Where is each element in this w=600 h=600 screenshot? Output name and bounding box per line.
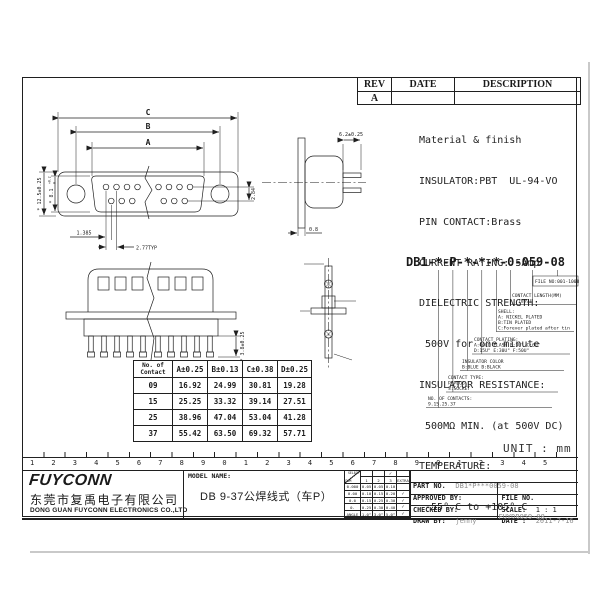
page-edge-shadow-bottom [30, 551, 590, 553]
note-line: Material & finish [419, 134, 589, 148]
break-line [147, 262, 154, 360]
cell: 63.50 [208, 426, 243, 442]
cell: 16.92 [173, 378, 208, 394]
dim-pin-length-label: 6.2±0.25 [339, 132, 363, 138]
tol-cell: 0.0 [345, 498, 361, 505]
ruler-numbers: 1234567890123456789012345 [30, 459, 564, 467]
cell: 39.14 [243, 394, 278, 410]
dimension-flange-thickness: 0.8 [288, 227, 322, 236]
tol-col: 3 [385, 477, 397, 484]
cell: 69.32 [243, 426, 278, 442]
code-color: INSULATOR COLOR [462, 359, 504, 365]
dim-flange-thickness-label: 0.8 [309, 227, 318, 233]
col-header: D±0.25 [278, 361, 312, 378]
tol-cell: ✓ [397, 511, 410, 518]
dim-half-pitch-label: 1.385 [76, 231, 91, 237]
tol-cell: ANGLE [345, 511, 361, 518]
table-row: 09 16.92 24.99 30.81 19.28 [134, 378, 312, 394]
code-type: CONTACT TYPE: [448, 375, 484, 381]
code-plating-option: A:GOLD FLASH B:3U" C:6U" [474, 343, 540, 349]
code-contacts-value: 9.15.25.37 [428, 402, 456, 408]
tol-col: 2 [373, 477, 385, 484]
tol-cell [397, 484, 410, 491]
tol-cell: 0. [345, 504, 361, 511]
cell: 53.04 [243, 410, 278, 426]
description-header: DESCRIPTION [455, 78, 581, 92]
ruler-line [22, 457, 578, 458]
tol-cell: 0.000 [345, 484, 361, 491]
model-name-value: DB 9-37公焊线式（车P） [200, 488, 332, 504]
tol-cell: 0.05 [361, 484, 373, 491]
dimension-row-offset: 2.84 [188, 187, 257, 201]
tol-cell: 0.00 [345, 491, 361, 498]
company-name-english: DONG GUAN FUYCONN ELECTRONICS CO.,LTD [30, 507, 188, 514]
code-shell: SHELL: [498, 309, 515, 315]
draw-by-label: DRAW BY: [413, 517, 446, 525]
note-line: PIN CONTACT:Brass [419, 216, 589, 230]
tol-cell: 0.15 [361, 498, 373, 505]
tolerance-corner-cell: SELECT DIM [345, 471, 361, 484]
revision-table: REV DATE DESCRIPTION A [357, 77, 581, 105]
tolerance-select-table: SELECT DIM ✓ 1 2 3 EXTRA 0.000 0.05 0.05… [345, 471, 410, 518]
cell: 09 [134, 378, 173, 394]
description-value [455, 92, 581, 105]
rev-header: REV [358, 78, 392, 92]
part-code-title: DB1-*-P-*-*-*-0-059-08 [406, 255, 565, 269]
table-header-row: No. of Contact A±0.25 B±0.13 C±0.38 D±0.… [134, 361, 312, 378]
code-type-option: S:SOCKET [448, 386, 470, 392]
tol-cell: 3.0° [373, 511, 385, 518]
tol-cell: 0.20 [385, 491, 397, 498]
date-header: DATE [392, 78, 455, 92]
date-value [392, 92, 455, 105]
company-logo: FUYCONN [28, 472, 113, 490]
dim-height-inner-label: * 8.1 [49, 188, 55, 203]
table-row: 25 38.96 47.04 53.04 41.28 [134, 410, 312, 426]
corner-header: No. of Contact [134, 361, 173, 378]
tol-cell: 0.10 [361, 491, 373, 498]
rear-view-drawing: * 3.8±0.25 [58, 256, 248, 362]
code-file-no: FILE NO:001-1008 [535, 279, 579, 285]
dim-tol-bottom: 0 [53, 182, 57, 184]
tol-cell: 1.0° [361, 511, 373, 518]
dim-height-outer-label: * 12.5±0.25 [37, 177, 43, 210]
tol-col: EXTRA [397, 477, 410, 484]
tol-cell: 0.30 [385, 498, 397, 505]
part-info-section: PART NO. DB1*P***0059-08 APPROVED BY: FI… [410, 471, 578, 518]
dim-tol-top: +0.2 [48, 176, 52, 184]
code-plating-option: D:15U" E:30U" F:50U" [474, 348, 529, 354]
cell: 37 [134, 426, 173, 442]
tol-col: 1 [361, 477, 373, 484]
cell: 38.96 [173, 410, 208, 426]
cell: 41.28 [278, 410, 312, 426]
dim-c-label: C [146, 108, 151, 117]
engineering-drawing-sheet: REV DATE DESCRIPTION A Material & finish… [0, 0, 600, 600]
dimension-height-inner: * 8.1 +0.2 0 [48, 176, 91, 212]
dim-cup-length-label: * 3.8±0.25 [240, 331, 246, 361]
dimension-pin-length: 6.2±0.25 [339, 132, 363, 170]
connector-front-outline [58, 172, 238, 216]
draw-by-value: jenny [455, 517, 476, 525]
solder-pins [88, 336, 214, 357]
tol-cell: ✓ [397, 504, 410, 511]
code-shell-option: B:TIN PLATED [498, 320, 531, 326]
code-shell-option: A: NICKEL PLATED [498, 315, 542, 321]
col-header: C±0.38 [243, 361, 278, 378]
tol-cell: 5.0° [385, 511, 397, 518]
dim-pitch-label: 2.77TYP [136, 246, 157, 252]
code-plating: CONTACT PLATING: [474, 337, 518, 343]
title-block: FUYCONN 东莞市复禹电子有限公司 DONG GUAN FUYCONN EL… [22, 470, 578, 520]
code-color-option: B:BLUE B:BLACK [462, 365, 501, 371]
cell: 55.42 [173, 426, 208, 442]
side-view-drawing: 6.2±0.25 0.8 [258, 126, 370, 240]
cell: 25.25 [173, 394, 208, 410]
code-type-option: P:PLUG [448, 381, 465, 387]
contact-dimension-table: No. of Contact A±0.25 B±0.13 C±0.38 D±0.… [133, 360, 312, 442]
code-length-value: (059) [518, 299, 532, 305]
dimension-cup-length: * 3.8±0.25 [218, 331, 246, 361]
tol-cell: ✓ [397, 491, 410, 498]
dim-row-offset-label: 2.84 [251, 188, 257, 200]
part-number-breakdown: DB1-*-P-*-*-*-0-059-08 FILE NO:001-1008 … [392, 250, 598, 412]
dimension-b: B [76, 122, 220, 184]
cell: 25 [134, 410, 173, 426]
cell: 19.28 [278, 378, 312, 394]
col-header: A±0.25 [173, 361, 208, 378]
divider [183, 471, 184, 518]
cell: 57.71 [278, 426, 312, 442]
cell: 33.32 [208, 394, 243, 410]
tol-cell: 0.15 [373, 491, 385, 498]
model-name-label: MODEL NAME: [188, 472, 231, 480]
tol-cell: 0.40 [385, 504, 397, 511]
code-contacts: NO. OF CONTACTS: [428, 396, 472, 402]
date-label: DATE : [502, 517, 527, 525]
tol-cell: 0.05 [373, 484, 385, 491]
note-line: INSULATOR:PBT UL-94-VO [419, 175, 589, 189]
cell: 30.81 [243, 378, 278, 394]
pin-detail-drawing [294, 256, 366, 372]
cell: 27.51 [278, 394, 312, 410]
tol-cell: 0.25 [373, 498, 385, 505]
cell: 47.04 [208, 410, 243, 426]
note-line: 500MΩ MIN. (at 500V DC) [419, 420, 589, 434]
side-view-outline [298, 138, 361, 228]
tol-cell: ✓ [397, 498, 410, 505]
cell: 15 [134, 394, 173, 410]
rear-view-outline [66, 269, 236, 336]
pin-detail-leaders [300, 264, 356, 360]
table-row: 37 55.42 63.50 69.32 57.71 [134, 426, 312, 442]
dimension-a: A [92, 138, 204, 176]
tol-cell: 0.10 [385, 484, 397, 491]
dim-b-label: B [146, 122, 151, 131]
tol-cell: 0.25 [361, 504, 373, 511]
code-length: CONTACT LENGTH(MM) [512, 293, 562, 299]
code-shell-option: C:Forever plated after tin [498, 326, 570, 332]
company-name-chinese: 东莞市复禹电子有限公司 [30, 491, 179, 508]
table-row: 15 25.25 33.32 39.14 27.51 [134, 394, 312, 410]
date-value: 2011-7-16 [536, 517, 574, 525]
tol-cell: 0.30 [373, 504, 385, 511]
cell: 24.99 [208, 378, 243, 394]
col-header: B±0.13 [208, 361, 243, 378]
break-line [145, 166, 152, 219]
front-view-drawing: C B A * 12.5±0. [28, 92, 258, 260]
dim-a-label: A [146, 138, 151, 147]
rev-value: A [358, 92, 392, 105]
